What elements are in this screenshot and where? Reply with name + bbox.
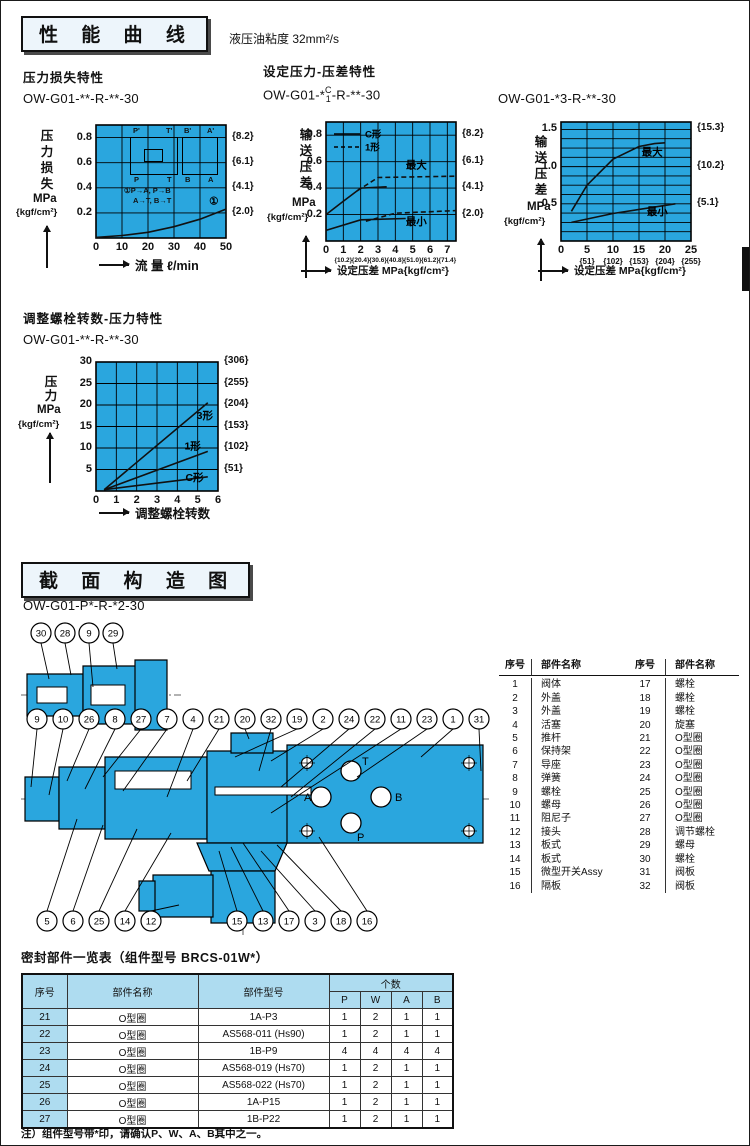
part-number: 27 [625,812,665,825]
callout-number: 5 [44,917,49,928]
seal-cell: 2 [360,1026,391,1043]
part-number: 12 [499,826,531,839]
y-tick-label: 0.6 [288,155,322,167]
part-name: 接头 [531,826,625,839]
y-bracket-label: {5.1} [697,197,719,208]
structure-model: OW-G01-P*-R-*2-30 [23,598,145,613]
part-number: 7 [499,759,531,772]
footnote: 注）组件型号带*印，请确认P、W、A、B其中之一。 [21,1126,267,1141]
chart1-x-label: 流 量 ℓ/min [135,255,199,274]
seal-cell: 1A-P3 [198,1009,329,1026]
parts-name-table: 序号部件名称序号部件名称1阀体17螺栓2外盖18螺栓3外盖19螺栓4活塞20旋塞… [499,659,739,893]
callout-number: 29 [108,629,119,640]
seal-cell: 1 [422,1009,453,1026]
valve-schematic-spool [144,149,163,162]
callout-number: 14 [120,917,131,928]
chart2-model-suffix: -R-**-30 [332,87,381,102]
seal-cell: 1 [422,1060,453,1077]
part-number: 23 [625,759,665,772]
callout-number: 7 [164,715,169,726]
part-name: O型圈 [665,812,739,825]
callout-number: 2 [320,715,325,726]
seal-cell: O型圈 [67,1009,198,1026]
part-number: 10 [499,799,531,812]
part-number: 17 [625,678,665,691]
part-number: 11 [499,812,531,825]
catalog-page: 性 能 曲 线 液压油粘度 32mm²/s 压力损失特性 OW-G01-**-R… [0,0,750,1146]
callout-number: 31 [474,715,485,726]
seal-cell: AS568-011 (Hs90) [198,1026,329,1043]
schematic-port-label: P' [133,127,140,135]
chart2-model-stack: C1 [325,86,332,104]
x-tick-label: 6 [203,494,233,506]
chart-annotation: 最大 [642,145,664,158]
part-name: 阀体 [531,678,625,691]
schematic-port-label: T' [166,127,172,135]
y-tick-label: 15 [58,420,92,432]
part-number: 16 [499,880,531,893]
chart-annotation: 最小 [647,205,668,218]
part-number: 8 [499,772,531,785]
seal-no: 25 [22,1077,67,1094]
right-arrow [99,264,129,266]
seal-header-no: 序号 [22,974,67,1009]
part-name: 微型开关Assy [531,866,625,879]
chart1-pressure-loss-plot: ① P' T' B' A' P T B A ①P→A, P→B A→T, B→T… [96,125,226,238]
seal-cell: 1 [422,1094,453,1111]
part-name: 螺栓 [665,692,739,705]
part-name: 螺栓 [665,705,739,718]
part-number: 6 [499,745,531,758]
part-number: 26 [625,799,665,812]
page-edge-tab [742,247,749,291]
seal-cell: AS568-019 (Hs70) [198,1060,329,1077]
seal-cell: 2 [360,1060,391,1077]
seal-header-model: 部件型号 [198,974,329,1009]
callout-number: 13 [258,917,269,928]
seal-cell: O型圈 [67,1026,198,1043]
seal-no: 21 [22,1009,67,1026]
seal-cell: 4 [360,1043,391,1060]
chart1-y-unit2: {kgf/cm²} [16,207,57,218]
part-number: 2 [499,692,531,705]
y-bracket-label: {102} [224,441,248,452]
callout-number: 8 [112,715,117,726]
chart3-set-pressure3-plot: 最大最小0.5{5.1}1.0{10.2}1.5{15.3}05{51}10{1… [561,122,691,241]
seal-no: 26 [22,1094,67,1111]
seal-cell: 1 [329,1026,360,1043]
callout-number: 12 [146,917,157,928]
schematic-note-1: ①P→A, P→B [124,186,171,195]
section-title-performance: 性 能 曲 线 [21,16,208,52]
y-tick-label: 0.2 [58,206,92,218]
callout-number: 11 [396,715,406,726]
y-tick-label: 10 [58,441,92,453]
y-tick-label: 0.6 [58,156,92,168]
seal-table-row: 21O型圈1A-P31211 [22,1009,453,1026]
x-tick-label: 7 [432,244,462,256]
seal-cell: 1 [391,1060,422,1077]
seal-cell: 1A-P15 [198,1094,329,1111]
seal-cell: 1 [391,1094,422,1111]
y-tick-label: 0.8 [288,128,322,140]
x-tick-label: 25 [676,244,706,256]
callout-number: 1 [450,715,455,726]
schematic-note-2: A→T, B→T [133,196,171,205]
y-tick-label: 0.5 [523,197,557,209]
parts-col-header: 部件名称 [665,659,739,676]
chart3-y-unit2: {kgf/cm²} [504,216,545,227]
callout-number: 3 [312,917,317,928]
seal-cell: 1B-P9 [198,1043,329,1060]
seal-table-row: 24O型圈AS568-019 (Hs70)1211 [22,1060,453,1077]
seal-table-row: 23O型圈1B-P94444 [22,1043,453,1060]
part-name: 螺栓 [665,853,739,866]
part-name: 保持架 [531,745,625,758]
parts-col-header: 序号 [625,659,665,676]
callout-number: 6 [70,917,75,928]
up-arrow [46,226,48,268]
seal-cell: AS568-022 (Hs70) [198,1077,329,1094]
seal-header-qty-col: A [391,992,422,1009]
y-bracket-label: {8.2} [462,128,484,139]
part-name: O型圈 [665,745,739,758]
port-label: P [357,832,364,844]
part-number: 30 [625,853,665,866]
part-number: 20 [625,719,665,732]
part-number: 24 [625,772,665,785]
chart2-set-pressure-plot: 最大最小C形1形0.2{2.0}0.4{4.1}0.6{6.1}0.8{8.2}… [326,122,456,241]
y-bracket-label: {6.1} [462,155,484,166]
schematic-port-label: B' [184,127,191,135]
chart-annotation: 1形 [184,441,201,453]
seal-header-qty-col: P [329,992,360,1009]
seal-cell: 1 [391,1026,422,1043]
viscosity-note: 液压油粘度 32mm²/s [229,30,339,47]
chart4-model: OW-G01-**-R-**-30 [23,332,139,347]
x-bracket-label: {71.4} [432,257,462,264]
part-name: O型圈 [665,759,739,772]
part-name: O型圈 [665,772,739,785]
x-bracket-label: {255} [676,257,706,266]
seal-cell: 1 [329,1060,360,1077]
part-number: 19 [625,705,665,718]
part-name: O型圈 [665,786,739,799]
part-number: 32 [625,880,665,893]
parts-col-header: 序号 [499,659,531,676]
seal-cell: O型圈 [67,1043,198,1060]
diagram-svg: TABP302892991026827742120321922422112313… [19,619,494,944]
seal-cell: 2 [360,1009,391,1026]
part-number: 1 [499,678,531,691]
chart2-x-label: 设定压差 MPa{kgf/cm²} [337,263,449,278]
seal-cell: 2 [360,1077,391,1094]
y-tick-label: 0.4 [288,181,322,193]
seal-cell: 1 [422,1111,453,1129]
chart1-y-axis-label: 压力损失 [39,128,55,192]
part-number: 3 [499,705,531,718]
port-label: B [395,792,402,804]
callout-number: 22 [370,715,381,726]
seal-header-qty-col: B [422,992,453,1009]
port-label: T [362,756,369,768]
seal-table-row: 26O型圈1A-P151211 [22,1094,453,1111]
right-arrow [538,270,568,272]
seal-cell: O型圈 [67,1094,198,1111]
callout-number: 21 [214,715,225,726]
callout-number: 27 [136,715,147,726]
y-tick-label: 30 [58,355,92,367]
part-number: 4 [499,719,531,732]
y-tick-label: 5 [58,463,92,475]
y-tick-label: 1.0 [523,160,557,172]
part-name: 螺母 [665,839,739,852]
chart1-model: OW-G01-**-R-**-30 [23,91,139,106]
part-name: 板式 [531,853,625,866]
seal-table-row: 22O型圈AS568-011 (Hs90)1211 [22,1026,453,1043]
y-bracket-label: {204} [224,398,248,409]
y-bracket-label: {4.1} [462,181,484,192]
chart-annotation: 最大 [406,158,427,171]
part-name: 隔板 [531,880,625,893]
part-name: 弹簧 [531,772,625,785]
part-name: 调节螺栓 [665,826,739,839]
part-name: 导座 [531,759,625,772]
seal-cell: O型圈 [67,1060,198,1077]
part-name: 阻尼子 [531,812,625,825]
seal-cell: 1 [329,1094,360,1111]
chart2-model: OW-G01-*C1-R-**-30 [263,87,380,105]
y-bracket-label: {306} [224,355,248,366]
callout-number: 9 [34,715,39,726]
callout-number: 32 [266,715,277,726]
seal-header-qty-col: W [360,992,391,1009]
part-number: 9 [499,786,531,799]
chart4-y-axis-label: 压力 [43,375,59,403]
part-name: 推杆 [531,732,625,745]
chart4-bolt-turns-plot: 3形1形C形5{51}10{102}15{153}20{204}25{255}3… [96,362,218,491]
schematic-port-label: B [185,176,190,184]
y-tick-label: 25 [58,377,92,389]
chart1-y-unit: MPa [33,193,57,205]
chart1-x-label-row: 流 量 ℓ/min [99,255,199,274]
seal-cell: 1 [329,1111,360,1129]
seal-cell: 1 [422,1026,453,1043]
chart1-subtitle: 压力损失特性 [23,67,104,86]
part-name: 外盖 [531,705,625,718]
callout-number: 23 [422,715,433,726]
part-name: 旋塞 [665,719,739,732]
y-tick-label: 0.4 [58,181,92,193]
seal-table-title: 密封部件一览表（组件型号 BRCS-01W*） [21,947,269,966]
c4-plot-svg: 3形1形C形 [96,362,218,491]
seal-no: 23 [22,1043,67,1060]
part-name: 阀板 [665,866,739,879]
callout-number: 4 [190,715,195,726]
schematic-port-label: P [134,176,139,184]
callout-number: 18 [336,917,347,928]
x-tick-label: 50 [211,241,241,253]
part-name: O型圈 [665,799,739,812]
y-tick-label: 0.2 [288,208,322,220]
part-name: 阀板 [665,880,739,893]
legend-label: C形 [365,129,382,141]
chart-annotation: 3形 [197,410,214,422]
callout-number: 20 [240,715,251,726]
seal-cell: O型圈 [67,1077,198,1094]
seal-no: 22 [22,1026,67,1043]
part-name: 螺母 [531,799,625,812]
schematic-port-label: A [208,176,213,184]
valve-schematic-box-right [182,137,218,175]
part-name: O型圈 [665,732,739,745]
callout-number: 19 [292,715,303,726]
stack-bottom: 1 [326,94,331,104]
legend-label: 1形 [365,142,380,154]
callout-number: 9 [86,629,91,640]
part-number: 18 [625,692,665,705]
y-bracket-label: {2.0} [232,206,254,217]
seal-cell: 1 [329,1009,360,1026]
seal-header-name: 部件名称 [67,974,198,1009]
y-bracket-label: {10.2} [697,160,724,171]
right-arrow [301,270,331,272]
seal-parts-table: 序号部件名称部件型号个数PWAB21O型圈1A-P3121122O型圈AS568… [21,973,454,1129]
seal-cell: 1 [391,1077,422,1094]
seal-cell: 2 [360,1111,391,1129]
seal-cell: 1 [422,1077,453,1094]
callout-number: 15 [232,917,243,928]
y-bracket-label: {6.1} [232,156,254,167]
schematic-port-label: A' [207,127,214,135]
port-label: A [304,792,312,804]
chart2-subtitle: 设定压力-压差特性 [263,61,376,80]
seal-cell: 1 [329,1077,360,1094]
right-arrow [99,512,129,514]
y-bracket-label: {4.1} [232,181,254,192]
part-number: 21 [625,732,665,745]
c3-plot-svg: 最大最小 [561,122,691,241]
callout-number: 25 [94,917,105,928]
seal-table-row: 25O型圈AS568-022 (Hs70)1211 [22,1077,453,1094]
y-bracket-label: {15.3} [697,122,724,133]
part-number: 14 [499,853,531,866]
section-title-structure: 截 面 构 造 图 [21,562,250,598]
chart2-model-prefix: OW-G01-* [263,87,325,102]
chart4-subtitle: 调整螺栓转数-压力特性 [23,308,163,327]
chart3-model: OW-G01-*3-R-**-30 [498,91,616,106]
c2-plot-svg: 最大最小C形1形 [326,122,456,241]
up-arrow [49,433,51,483]
y-tick-label: 1.5 [523,122,557,134]
cross-section-diagram: TABP302892991026827742120321922422112313… [19,619,494,949]
chart4-y-unit2: {kgf/cm²} [18,419,59,430]
callout-number: 30 [36,629,47,640]
seal-cell: 4 [391,1043,422,1060]
callout-number: 16 [362,917,373,928]
chart-annotation: C形 [185,472,204,484]
part-number: 25 [625,786,665,799]
part-number: 28 [625,826,665,839]
seal-cell: 4 [329,1043,360,1060]
parts-col-header: 部件名称 [531,659,625,676]
callout-number: 24 [344,715,355,726]
y-tick-label: 20 [58,398,92,410]
part-name: 活塞 [531,719,625,732]
chart2-x-label-row: 设定压差 MPa{kgf/cm²} [301,263,449,278]
y-bracket-label: {255} [224,377,248,388]
chart-annotation: ① [209,196,219,208]
callout-number: 28 [60,629,71,640]
callout-number: 10 [58,715,69,726]
part-name: 螺栓 [531,786,625,799]
part-number: 15 [499,866,531,879]
callout-number: 26 [84,715,95,726]
seal-cell: 1 [391,1009,422,1026]
part-number: 31 [625,866,665,879]
part-name: 外盖 [531,692,625,705]
y-bracket-label: {153} [224,420,248,431]
y-bracket-label: {51} [224,463,243,474]
seal-cell: 2 [360,1094,391,1111]
chart-annotation: 最小 [406,215,427,228]
callout-number: 17 [284,917,295,928]
part-name: 板式 [531,839,625,852]
schematic-port-label: T [167,176,172,184]
part-number: 22 [625,745,665,758]
seal-cell: 4 [422,1043,453,1060]
seal-cell: 1 [391,1111,422,1129]
seal-no: 24 [22,1060,67,1077]
part-number: 5 [499,732,531,745]
y-bracket-label: {8.2} [232,131,254,142]
y-bracket-label: {2.0} [462,208,484,219]
part-number: 13 [499,839,531,852]
seal-header-qty: 个数 [329,974,453,992]
part-number: 29 [625,839,665,852]
y-tick-label: 0.8 [58,131,92,143]
part-name: 螺栓 [665,678,739,691]
